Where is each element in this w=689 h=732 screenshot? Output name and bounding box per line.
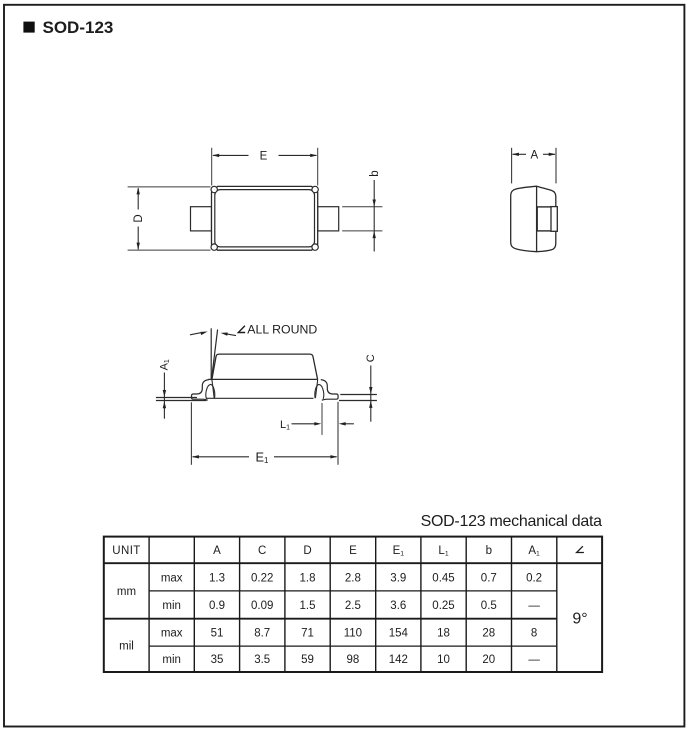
svg-text:C: C (258, 545, 266, 557)
svg-text:L1: L1 (438, 545, 448, 558)
svg-text:8: 8 (531, 628, 537, 640)
svg-text:10: 10 (437, 654, 450, 666)
svg-text:min: min (162, 654, 181, 666)
svg-text:110: 110 (344, 628, 362, 640)
svg-text:mm: mm (117, 586, 136, 598)
svg-text:0.2: 0.2 (526, 572, 542, 584)
svg-text:0.9: 0.9 (209, 600, 225, 612)
svg-text:E: E (349, 545, 357, 557)
svg-text:142: 142 (389, 654, 408, 666)
svg-text:154: 154 (389, 628, 409, 640)
svg-text:28: 28 (482, 628, 495, 640)
svg-text:0.5: 0.5 (481, 600, 497, 612)
svg-text:20: 20 (482, 654, 495, 666)
svg-text:E1: E1 (256, 450, 270, 466)
svg-text:2.5: 2.5 (345, 600, 361, 612)
svg-text:A1: A1 (528, 545, 540, 558)
svg-text:E: E (260, 150, 268, 162)
svg-text:0.25: 0.25 (432, 600, 454, 612)
svg-text:0.45: 0.45 (432, 572, 454, 584)
svg-text:C: C (365, 354, 377, 362)
svg-text:min: min (162, 600, 181, 612)
svg-text:D: D (303, 545, 311, 557)
svg-text:0.7: 0.7 (481, 572, 497, 584)
svg-text:71: 71 (301, 628, 314, 640)
svg-text:18: 18 (437, 628, 450, 640)
svg-text:UNIT: UNIT (112, 545, 140, 557)
svg-text:51: 51 (211, 628, 224, 640)
svg-text:A: A (530, 149, 538, 161)
svg-text:D: D (133, 214, 145, 222)
svg-text:A1: A1 (158, 359, 171, 370)
svg-text:8.7: 8.7 (254, 628, 270, 640)
svg-text:A: A (213, 545, 221, 557)
svg-text:3.9: 3.9 (390, 572, 406, 584)
svg-text:1.3: 1.3 (209, 572, 225, 584)
svg-text:max: max (161, 628, 183, 640)
svg-text:—: — (528, 600, 540, 612)
svg-text:3.5: 3.5 (254, 654, 270, 666)
svg-text:98: 98 (347, 654, 360, 666)
svg-text:b: b (486, 545, 492, 557)
svg-text:0.22: 0.22 (251, 572, 273, 584)
svg-text:0.09: 0.09 (251, 600, 273, 612)
svg-text:—: — (528, 654, 540, 666)
svg-text:ALL ROUND: ALL ROUND (247, 323, 317, 337)
svg-text:1.8: 1.8 (300, 572, 316, 584)
svg-text:SOD-123: SOD-123 (43, 18, 114, 37)
svg-text:mil: mil (119, 641, 134, 653)
svg-text:E1: E1 (393, 545, 405, 558)
svg-text:L1: L1 (280, 419, 290, 432)
svg-text:max: max (161, 572, 183, 584)
svg-text:2.8: 2.8 (345, 572, 361, 584)
svg-text:35: 35 (211, 654, 224, 666)
svg-text:9°: 9° (572, 611, 587, 628)
svg-text:b: b (369, 170, 381, 176)
svg-text:3.6: 3.6 (390, 600, 406, 612)
svg-text:1.5: 1.5 (300, 600, 316, 612)
svg-text:59: 59 (301, 654, 314, 666)
svg-text:SOD-123 mechanical data: SOD-123 mechanical data (421, 513, 603, 530)
